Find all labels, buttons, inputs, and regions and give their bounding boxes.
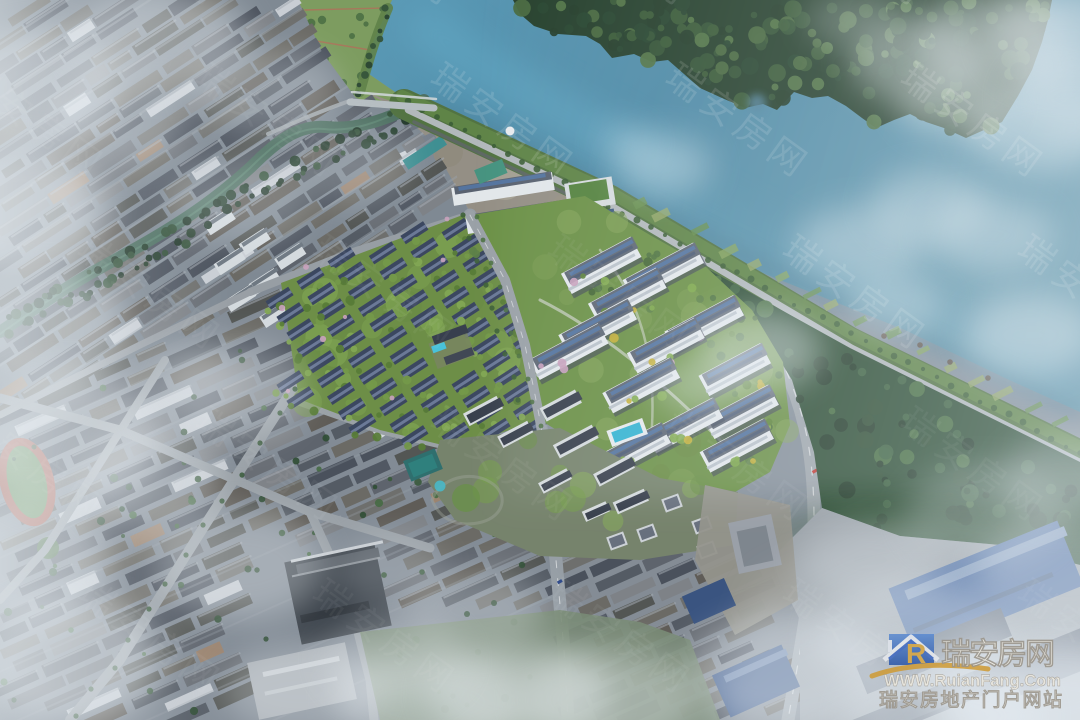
svg-text:瑞安房地产门户网站: 瑞安房地产门户网站 [879,688,1064,711]
svg-text:WWW.RuianFang.Com: WWW.RuianFang.Com [884,672,1061,690]
svg-text:瑞安房网: 瑞安房网 [941,638,1053,671]
